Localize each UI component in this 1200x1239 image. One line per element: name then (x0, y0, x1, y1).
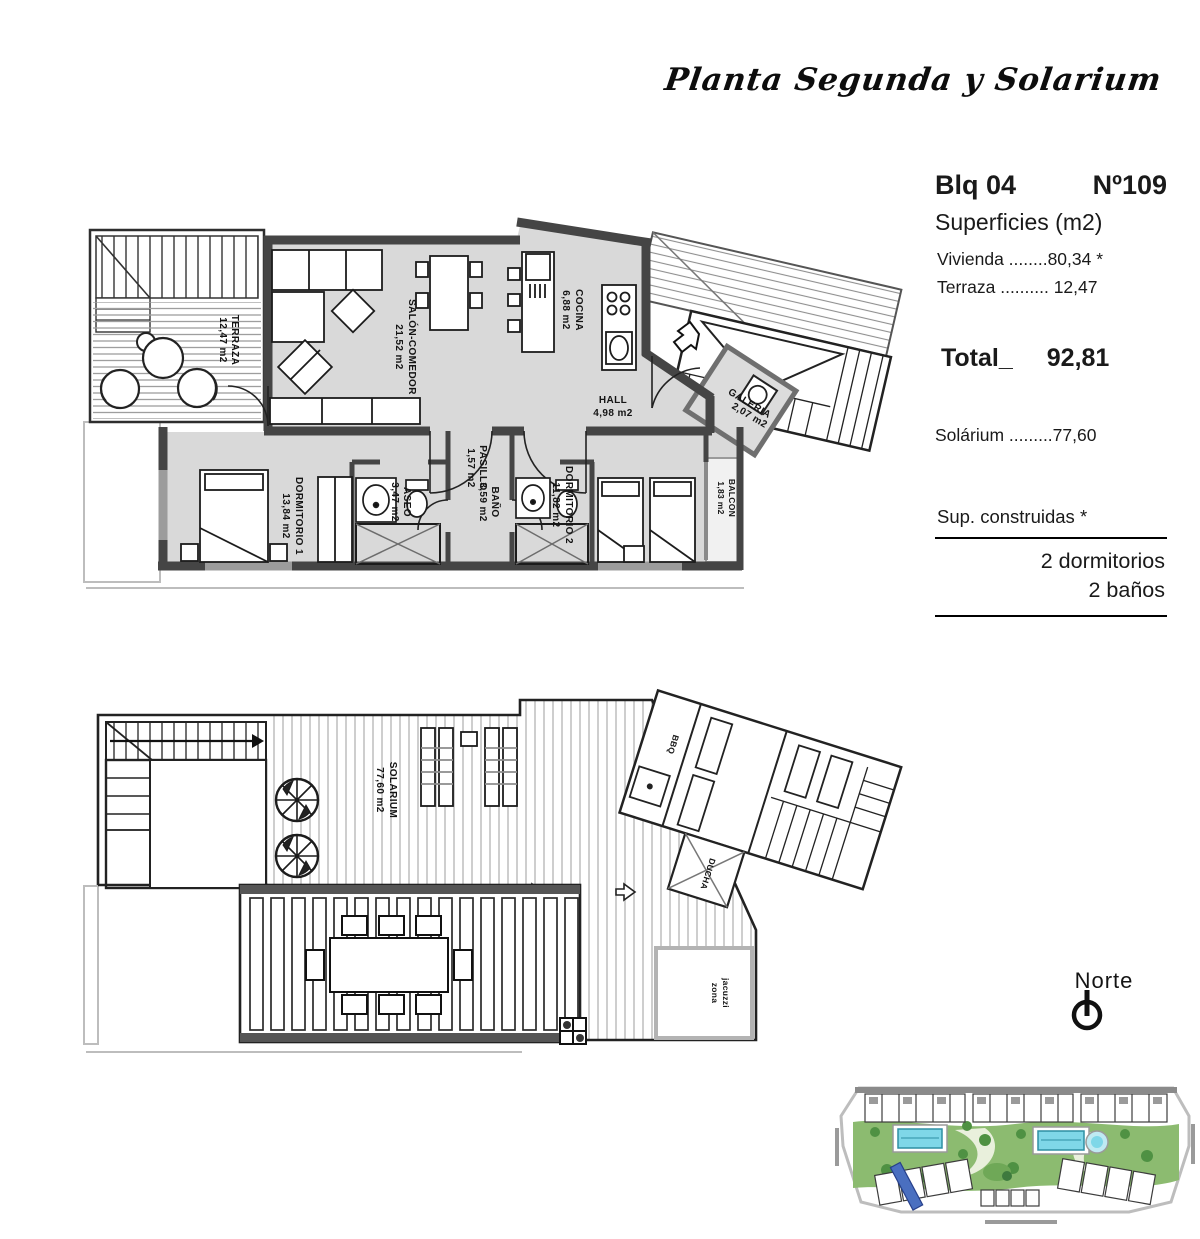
north-label: Norte (1075, 968, 1134, 993)
room-label-pasillo-area: 1,57 m2 (465, 448, 476, 488)
room-label-cocina: COCINA (573, 289, 584, 331)
room-label-balcon: BALCON (727, 479, 737, 517)
north-arrow-icon (1074, 990, 1100, 1028)
room-label-salon: SALÓN-COMEDOR (406, 299, 419, 395)
room-label-dormitorio1: DORMITORIO 1 (293, 477, 304, 555)
room-label-hall: HALL (599, 395, 627, 406)
room-label-solarium-area: 77,60 m2 (374, 767, 385, 812)
room-label-terraza: TERRAZA (229, 315, 240, 366)
jacuzzi-zone: zona jacuzzi (656, 948, 752, 1038)
jacuzzi-label-1: zona (710, 983, 720, 1004)
north-indicator: Norte (1074, 968, 1133, 1028)
room-label-cocina-area: 6,88 m2 (560, 290, 571, 330)
room-label-terraza-area: 12,47 m2 (217, 317, 228, 362)
room-label-solarium: SOLARIUM (387, 762, 398, 819)
upper-floor-plan: 12,47 m2 TERRAZA 21,52 m2 SALÓN-COMEDOR … (90, 221, 906, 570)
room-label-balcon-area: 1,83 m2 (716, 481, 726, 514)
room-label-dormitorio1-area: 13,84 m2 (280, 493, 291, 538)
room-label-dormitorio2-area: 11,82 m2 (550, 483, 561, 528)
room-label-hall-area: 4,98 m2 (593, 408, 633, 419)
room-label-dormitorio2: DORMITORIO 2 (563, 466, 574, 544)
pergola (240, 885, 586, 1044)
room-label-salon-area: 21,52 m2 (393, 324, 404, 369)
jacuzzi-label-2: jacuzzi (721, 977, 731, 1008)
room-label-bano: BAÑO (489, 486, 502, 517)
floorplan-sheet: Planta Segunda y Solarium Blq 04 Nº109 S… (0, 0, 1200, 1239)
room-label-bano-area: 3,59 m2 (477, 482, 488, 522)
room-label-aseo: ASEO (401, 487, 412, 517)
plans-canvas: 12,47 m2 TERRAZA 21,52 m2 SALÓN-COMEDOR … (0, 0, 1200, 1239)
solarium-stairs (106, 722, 266, 888)
site-masterplan (835, 1087, 1195, 1224)
solarium-floor-plan: BBQ DUCHA (98, 690, 901, 1044)
dormitorio1-furniture (181, 470, 352, 562)
room-label-aseo-area: 3,47 m2 (389, 482, 400, 522)
